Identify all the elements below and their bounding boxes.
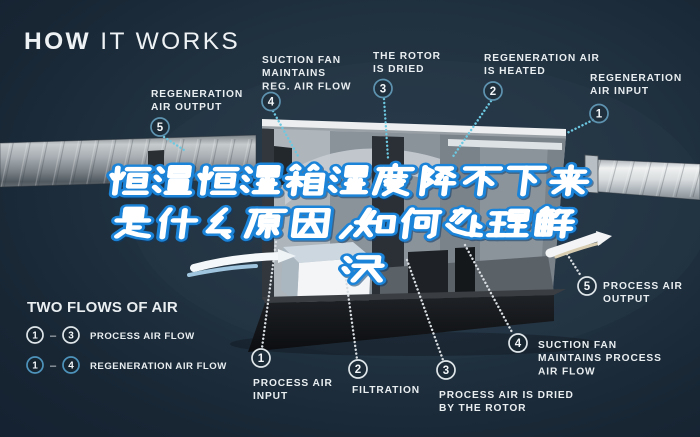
svg-text:1: 1 [32, 331, 38, 342]
svg-text:HOW IT WORKS: HOW IT WORKS [24, 28, 240, 55]
svg-text:3: 3 [443, 365, 449, 377]
svg-text:4: 4 [268, 97, 275, 109]
svg-text:3: 3 [380, 84, 386, 96]
svg-text:5: 5 [584, 281, 591, 293]
svg-text:5: 5 [157, 122, 164, 134]
svg-text:–: – [50, 360, 57, 372]
svg-text:3: 3 [68, 331, 74, 342]
svg-text:1: 1 [596, 109, 603, 121]
svg-text:1: 1 [258, 353, 265, 365]
svg-text:REGENERATION AIR FLOW: REGENERATION AIR FLOW [90, 361, 227, 372]
svg-text:2: 2 [490, 86, 496, 98]
svg-text:TWO FLOWS OF AIR: TWO FLOWS OF AIR [27, 299, 178, 316]
svg-text:2: 2 [355, 364, 361, 376]
svg-text:FILTRATION: FILTRATION [352, 385, 420, 396]
svg-text:4: 4 [68, 361, 74, 372]
svg-text:4: 4 [515, 338, 522, 350]
svg-text:PROCESS AIR FLOW: PROCESS AIR FLOW [90, 331, 195, 342]
svg-text:1: 1 [32, 361, 38, 372]
svg-text:–: – [50, 330, 57, 342]
